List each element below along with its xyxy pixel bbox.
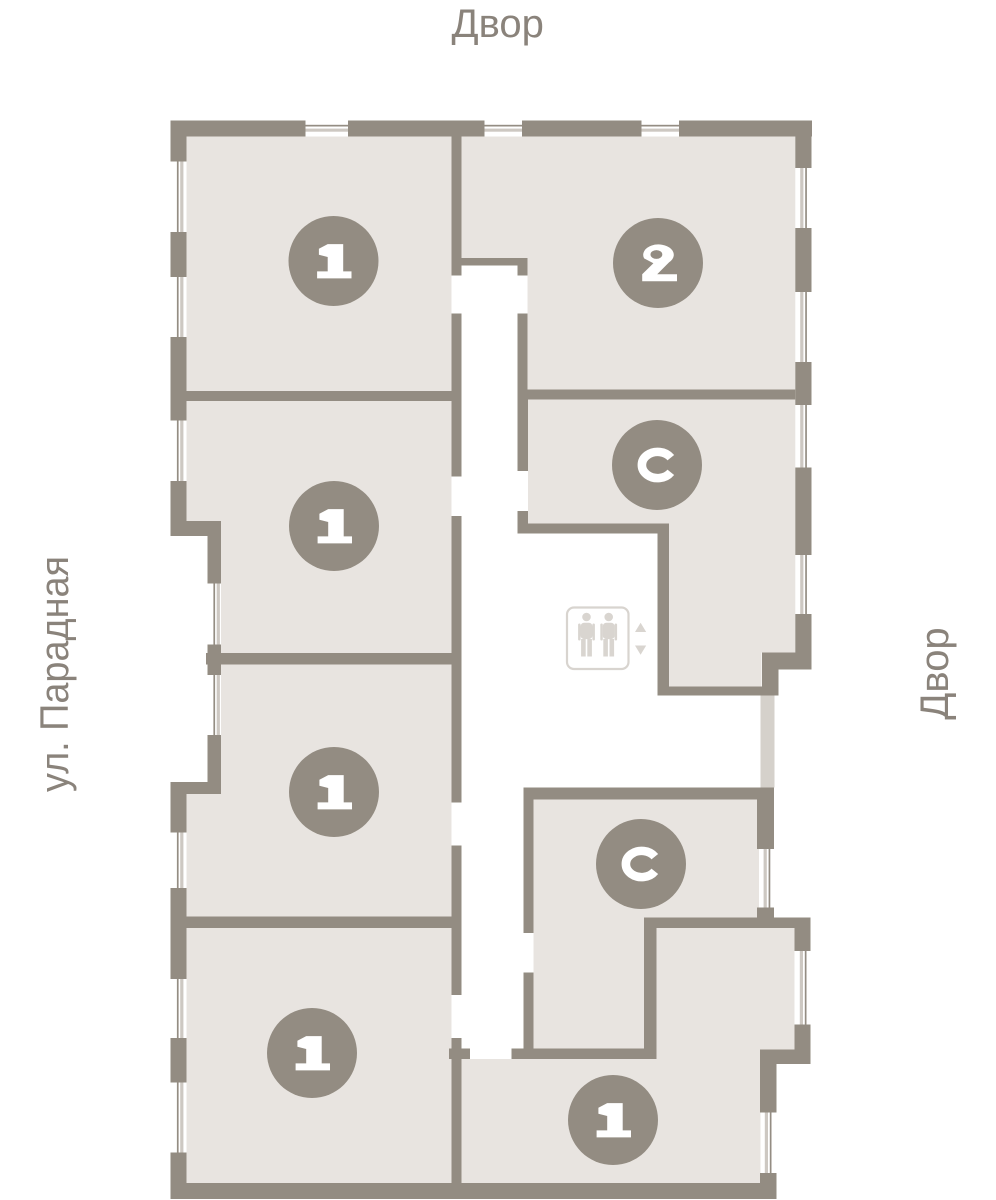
svg-text:Двор: Двор (913, 627, 957, 719)
svg-text:Двор: Двор (452, 2, 544, 46)
svg-text:ул. Парадная: ул. Парадная (33, 556, 77, 792)
